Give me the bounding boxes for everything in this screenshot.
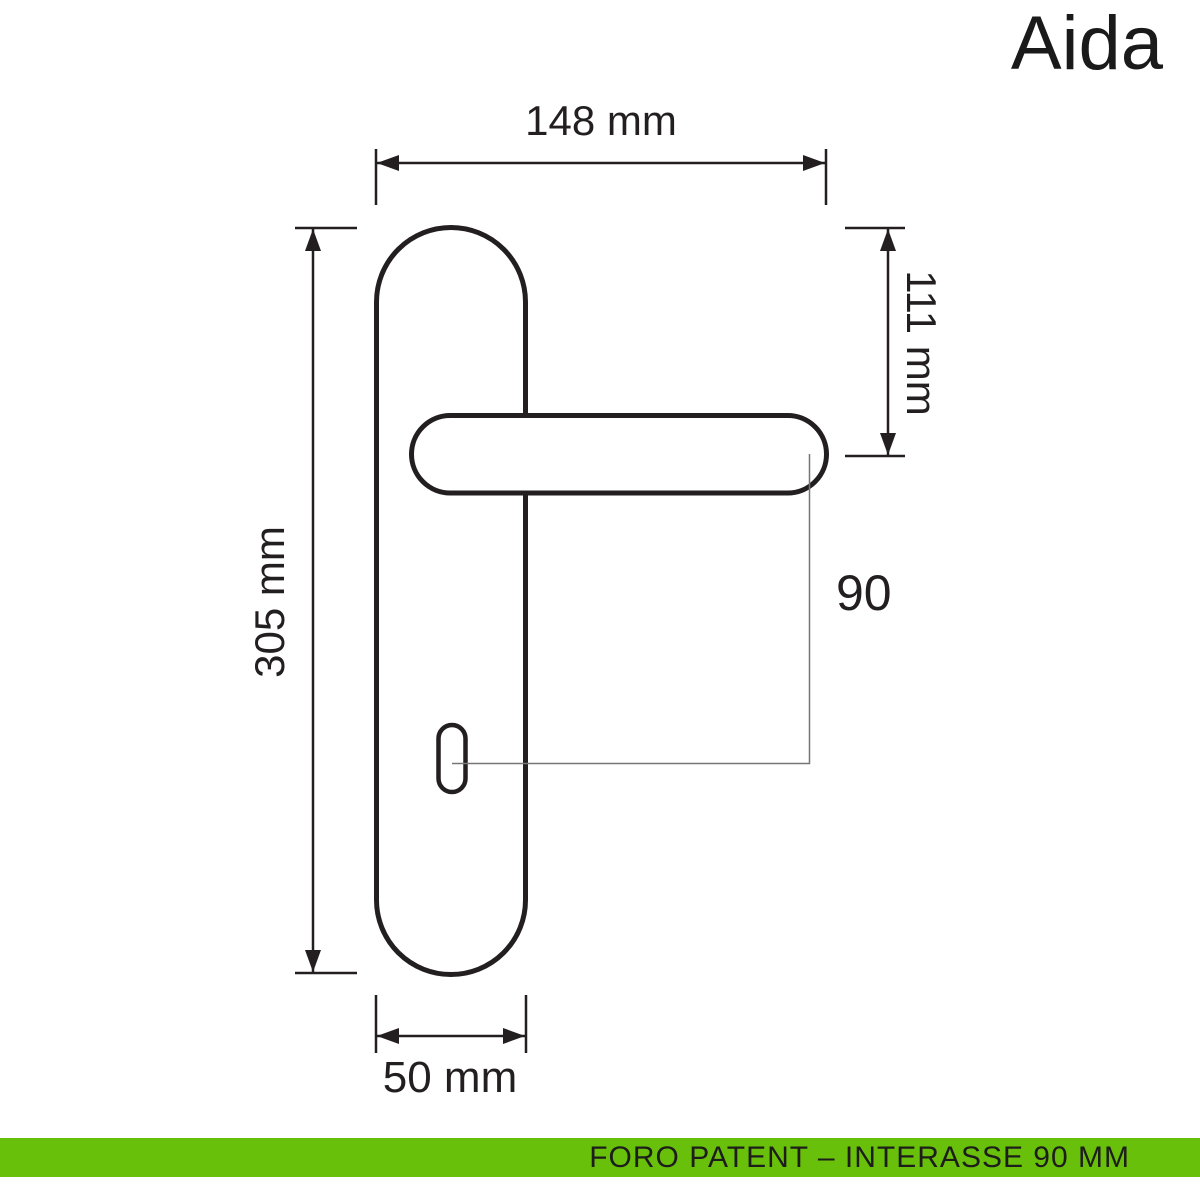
lever-handle-outline bbox=[412, 416, 827, 494]
product-title: Aida bbox=[1011, 6, 1163, 82]
dim-label-interaxis: 90 bbox=[836, 564, 892, 622]
arrowhead-right-icon bbox=[803, 155, 825, 171]
dim-label-top-to-handle-axis: 111 mm bbox=[897, 270, 945, 415]
dim-111mm bbox=[845, 228, 905, 456]
keyhole-outline bbox=[439, 725, 466, 792]
arrowhead-right-icon bbox=[503, 1028, 525, 1044]
dim-label-plate-height: 305 mm bbox=[246, 526, 294, 678]
footer-bar: FORO PATENT – INTERASSE 90 MM bbox=[0, 1138, 1200, 1177]
dim-label-total-width: 148 mm bbox=[525, 97, 677, 145]
dim-50mm bbox=[376, 995, 526, 1053]
footer-spec-label: FORO PATENT – INTERASSE 90 MM bbox=[589, 1141, 1130, 1175]
arrowhead-down-icon bbox=[305, 950, 321, 972]
dim-148mm bbox=[376, 149, 826, 205]
arrowhead-up-icon bbox=[305, 229, 321, 251]
page: 148 mm 111 mm 305 mm 90 50 mm Aida FORO … bbox=[0, 0, 1200, 1200]
arrowhead-left-icon bbox=[377, 155, 399, 171]
backplate-outline bbox=[377, 228, 526, 975]
handle-technical-drawing bbox=[0, 0, 1200, 1200]
dim-305mm bbox=[295, 228, 357, 973]
dim-label-plate-width: 50 mm bbox=[383, 1053, 517, 1103]
arrowhead-up-icon bbox=[880, 229, 896, 251]
arrowhead-down-icon bbox=[880, 433, 896, 455]
arrowhead-left-icon bbox=[377, 1028, 399, 1044]
